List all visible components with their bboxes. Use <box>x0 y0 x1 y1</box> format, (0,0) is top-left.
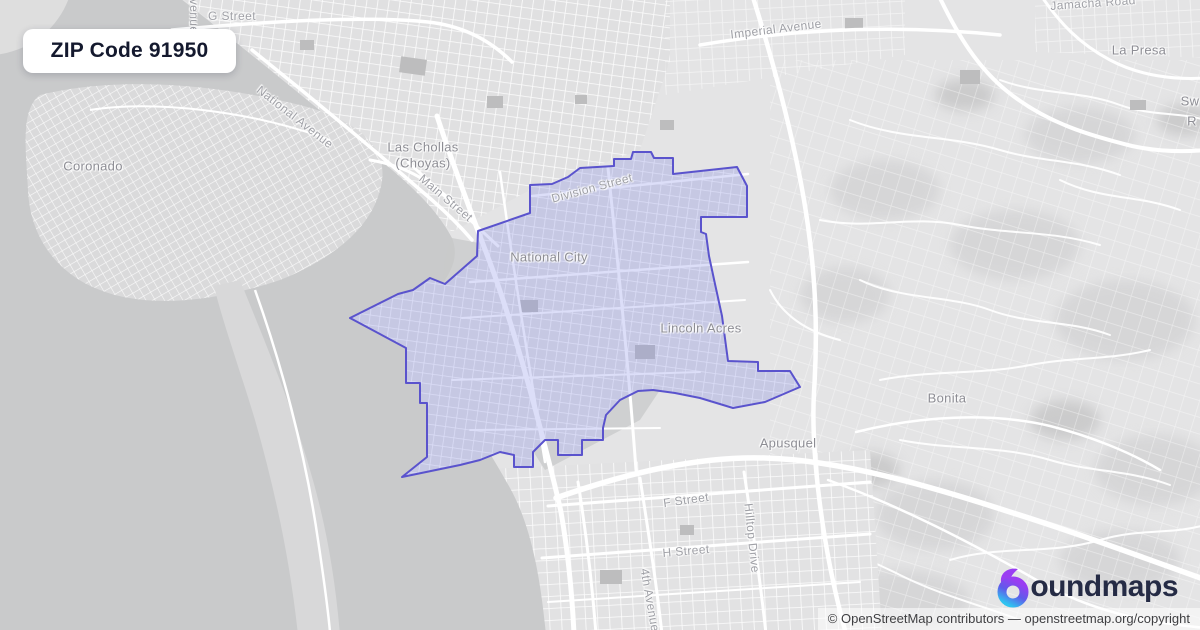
map-canvas: G Street Avenue Imperial Avenue Jamacha … <box>0 0 1200 630</box>
boundmaps-drop-icon <box>996 566 1033 608</box>
osm-attribution: © OpenStreetMap contributors — openstree… <box>818 608 1200 630</box>
zip-code-badge-title: ZIP Code 91950 <box>51 39 209 63</box>
boundmaps-logo: oundmaps <box>996 566 1178 608</box>
boundmaps-wordmark: oundmaps <box>1030 570 1178 604</box>
zip-code-badge: ZIP Code 91950 <box>23 29 236 73</box>
basemap <box>0 0 1200 630</box>
